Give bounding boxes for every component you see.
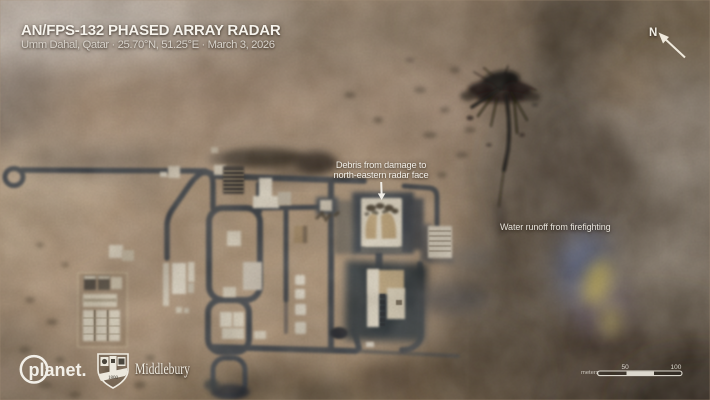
svg-text:1800: 1800	[108, 376, 119, 381]
svg-text:planet.: planet.	[29, 360, 87, 380]
